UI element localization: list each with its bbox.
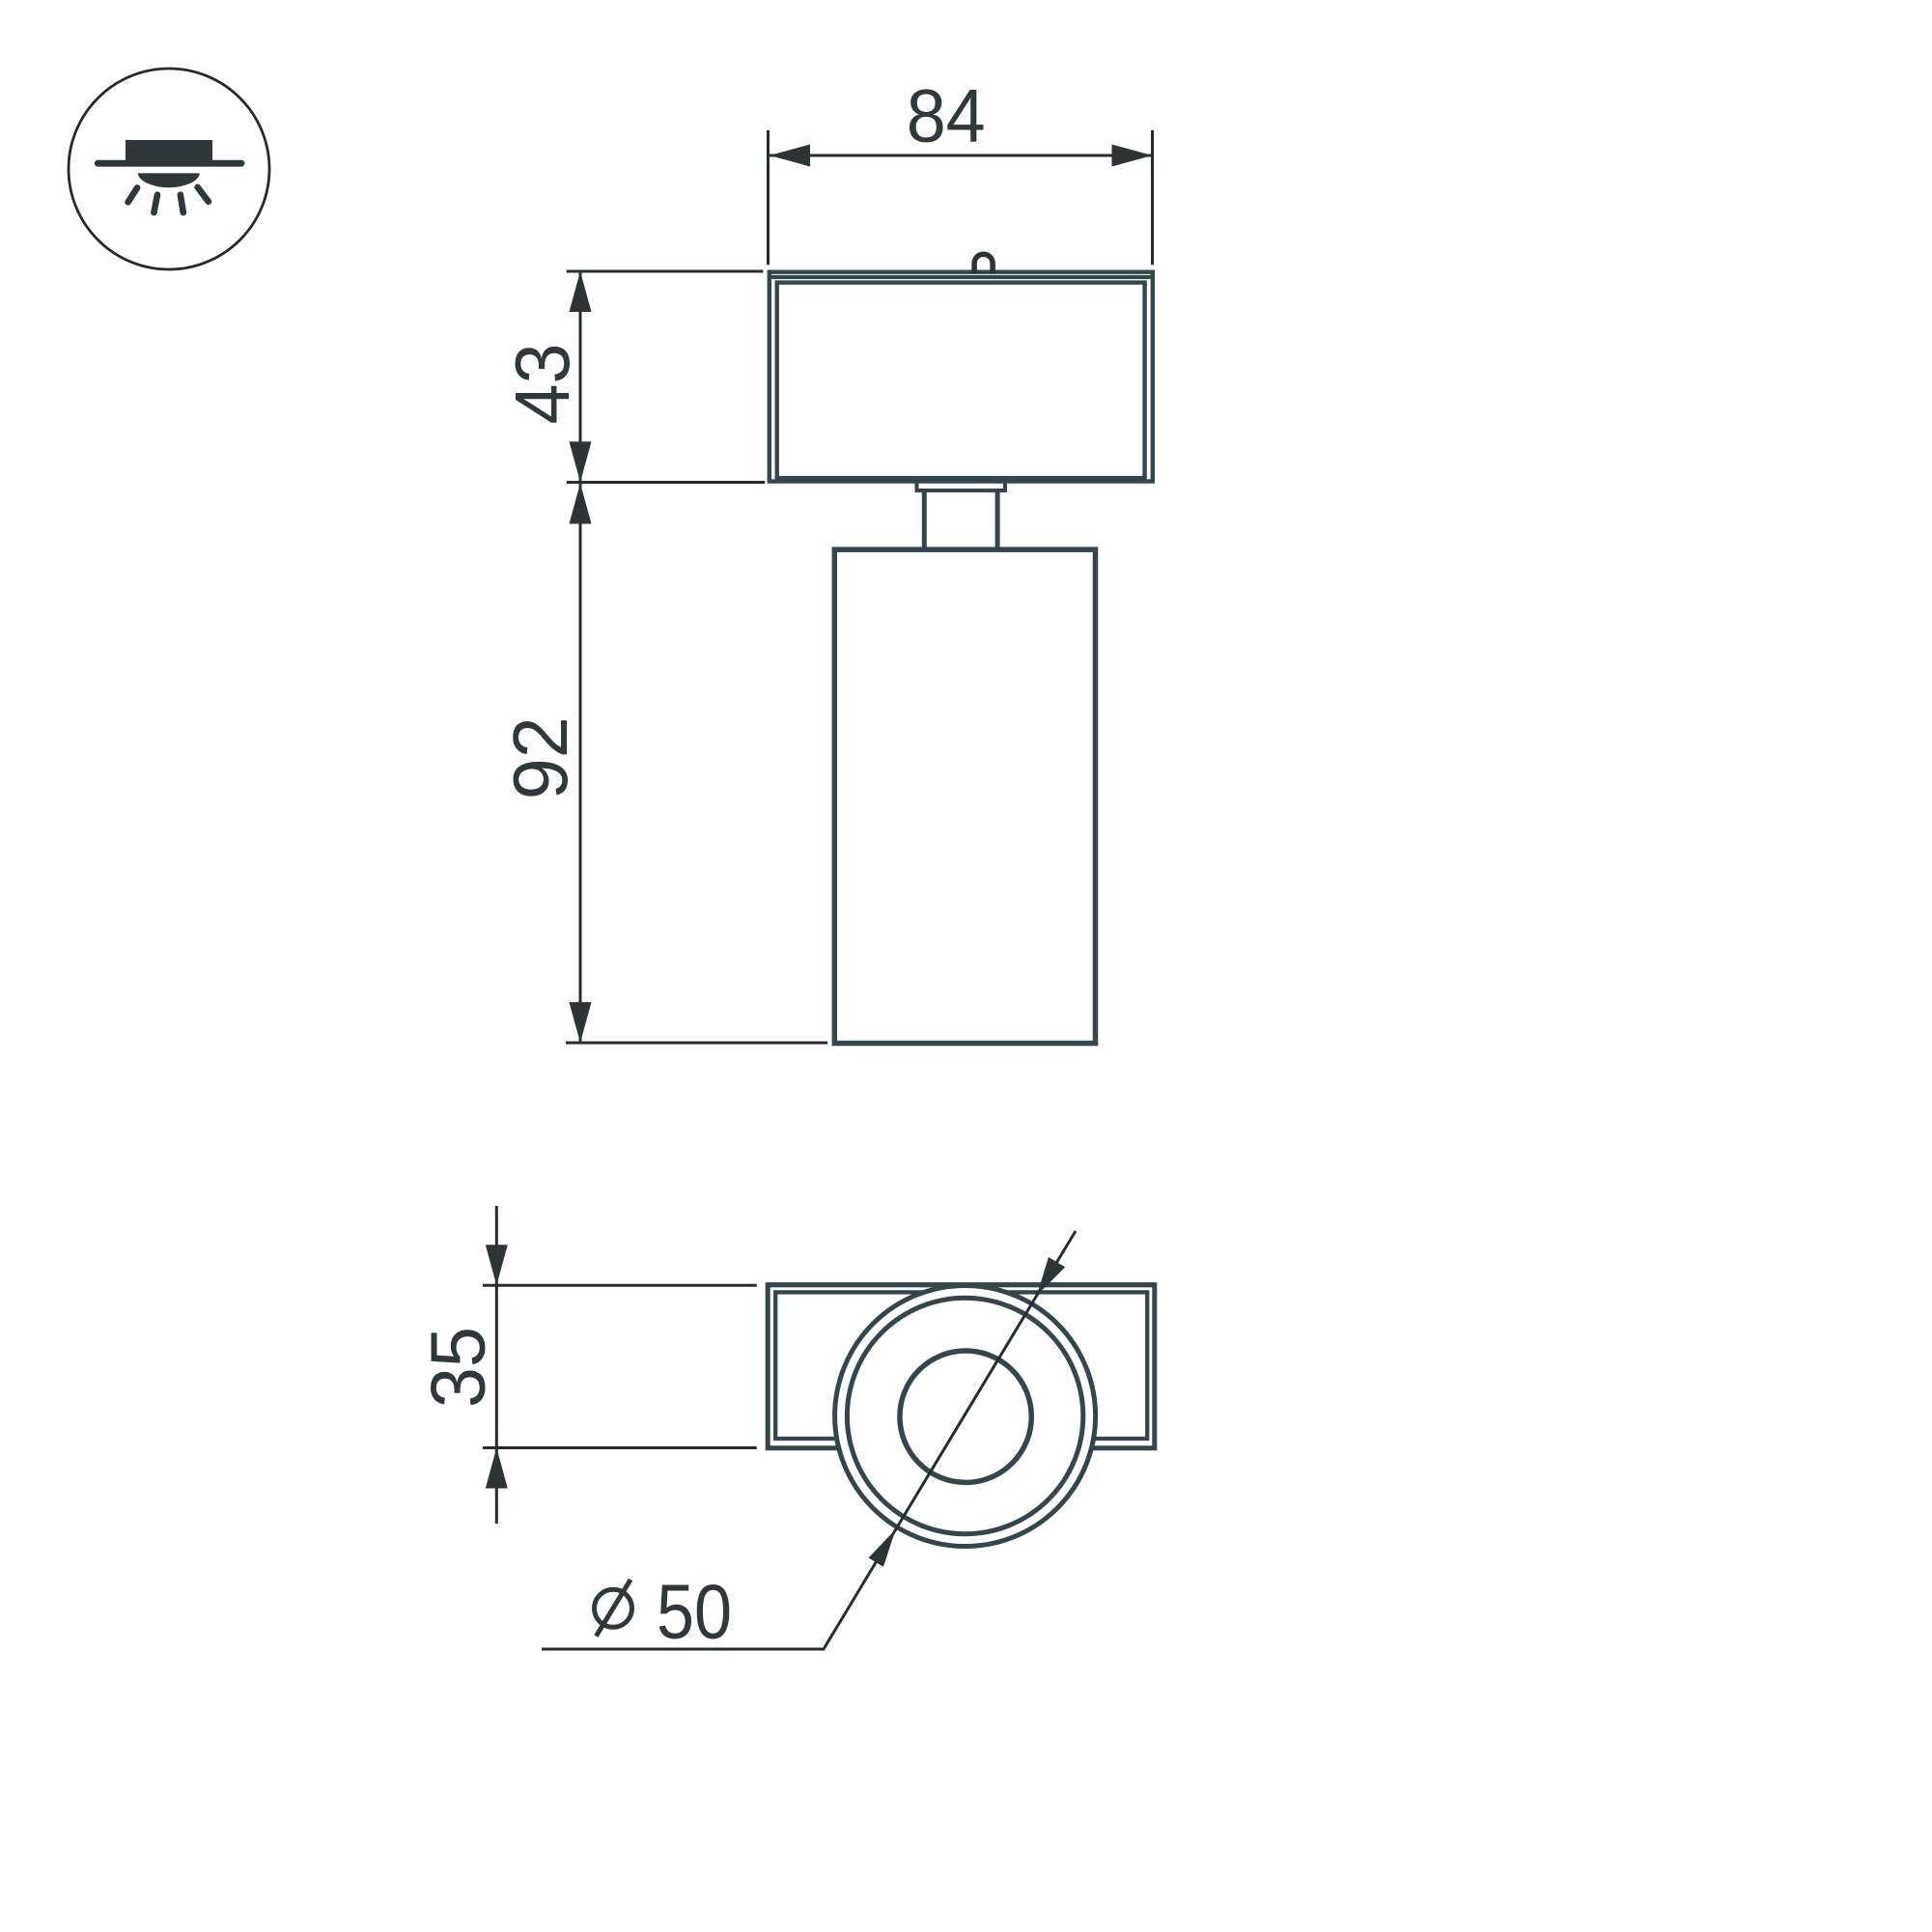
svg-text:35: 35 xyxy=(415,1327,501,1408)
svg-text:43: 43 xyxy=(499,344,585,425)
svg-text:84: 84 xyxy=(907,73,986,158)
svg-text:50: 50 xyxy=(657,1569,732,1655)
svg-text:92: 92 xyxy=(497,716,583,799)
